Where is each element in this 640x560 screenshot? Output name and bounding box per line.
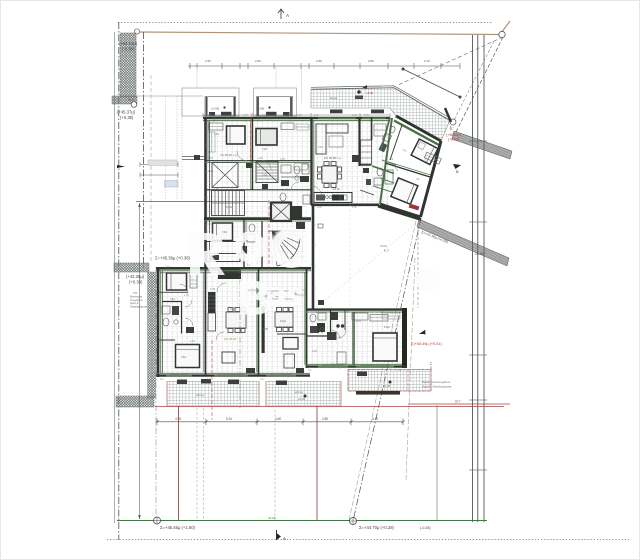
svg-text:Σ)+65.49μ (+0.51): Σ)+65.49μ (+0.51) (411, 342, 442, 346)
svg-text:ΥΔ: ΥΔ (352, 342, 356, 346)
svg-text:1.40: 1.40 (243, 114, 248, 117)
svg-text:ΣΚ 35.80 τ.μ.: ΣΚ 35.80 τ.μ. (324, 156, 342, 160)
svg-text:1.95: 1.95 (330, 363, 335, 366)
svg-text:κήπος: κήπος (295, 390, 304, 394)
svg-text:(+46.60μ): (+46.60μ) (446, 133, 461, 137)
svg-text:(+0.38): (+0.38) (129, 280, 143, 285)
svg-text:ΚΑΘ: ΚΑΘ (280, 319, 287, 323)
svg-text:3.6: 3.6 (260, 378, 264, 381)
svg-text:0.80: 0.80 (262, 114, 267, 117)
svg-text:3.40: 3.40 (208, 157, 213, 160)
svg-text:Θ.Υ.: Θ.Υ. (128, 98, 135, 102)
svg-text:4.05: 4.05 (317, 206, 322, 209)
svg-text:(+45.37μ): (+45.37μ) (117, 110, 136, 115)
svg-text:ΥΔ1: ΥΔ1 (214, 132, 220, 136)
svg-text:ΣΚ 28.30: ΣΚ 28.30 (224, 337, 237, 341)
svg-text:ΥΔ3: ΥΔ3 (222, 230, 228, 234)
svg-text:5.10: 5.10 (226, 417, 232, 421)
svg-text:+0.45: +0.45 (383, 384, 391, 388)
svg-text:(-0.38): (-0.38) (122, 47, 135, 52)
svg-text:2.40: 2.40 (210, 287, 216, 291)
svg-text:ΥΔ2: ΥΔ2 (262, 147, 268, 151)
svg-text:Θ.Γ: Θ.Γ (455, 400, 461, 404)
svg-text:κήπος: κήπος (196, 393, 205, 397)
svg-text:(+54.12μ): (+54.12μ) (119, 41, 138, 46)
svg-text:2.60: 2.60 (352, 206, 357, 209)
svg-text:ΚΑΘ: ΚΑΘ (384, 325, 391, 329)
svg-text:ΥΔ2: ΥΔ2 (181, 355, 187, 359)
svg-text:ΛΙΤ: ΛΙΤ (133, 291, 138, 295)
svg-text:(+0.52): (+0.52) (448, 138, 459, 142)
svg-text:(+0.38): (+0.38) (120, 115, 134, 120)
svg-text:Σ=+45.46μ (+1.50): Σ=+45.46μ (+1.50) (160, 525, 196, 530)
svg-text:ΥΔ1: ΥΔ1 (170, 297, 176, 301)
svg-text:ΥΔ 18.05 τ.μ.: ΥΔ 18.05 τ.μ. (220, 153, 238, 157)
svg-text:0.75: 0.75 (364, 114, 369, 117)
svg-text:1.35: 1.35 (184, 294, 189, 297)
svg-text:2.60: 2.60 (255, 59, 261, 63)
svg-text:Σ=+44.70μ (+0.28): Σ=+44.70μ (+0.28) (359, 525, 395, 530)
svg-text:2.70: 2.70 (424, 59, 430, 63)
svg-text:2.90: 2.90 (258, 157, 263, 160)
svg-text:(+2.88): (+2.88) (211, 107, 219, 111)
svg-text:2.45: 2.45 (222, 373, 227, 376)
svg-text:5.20: 5.20 (372, 417, 378, 421)
svg-text:Σ=+45.36μ (+0.38): Σ=+45.36μ (+0.38) (155, 256, 191, 261)
svg-text:ΥΔ: ΥΔ (390, 157, 394, 161)
svg-text:δώμα: δώμα (330, 96, 337, 100)
svg-text:1.20: 1.20 (208, 169, 214, 173)
svg-text:0.90: 0.90 (206, 114, 211, 117)
svg-text:2.10: 2.10 (318, 145, 324, 149)
svg-text:(-0.28): (-0.28) (420, 526, 431, 530)
svg-text:+5.60: +5.60 (366, 91, 374, 95)
svg-text:2.20: 2.20 (312, 349, 318, 353)
svg-text:Οικοδομήματα: Οικοδομήματα (130, 304, 148, 308)
svg-text:2.50: 2.50 (205, 59, 211, 63)
svg-text:1.10: 1.10 (356, 319, 362, 323)
svg-text:ΥΔ: ΥΔ (416, 177, 420, 181)
svg-text:3.2: 3.2 (308, 369, 312, 372)
svg-text:(+42.36μ): (+42.36μ) (126, 274, 145, 279)
svg-text:+0.45: +0.45 (298, 397, 306, 401)
svg-text:F-7: F-7 (384, 249, 389, 253)
svg-text:2.50: 2.50 (316, 59, 322, 63)
svg-text:1.10: 1.10 (352, 114, 357, 117)
svg-text:14.30: 14.30 (429, 362, 433, 370)
svg-text:44.05: 44.05 (268, 516, 276, 520)
svg-text:1.20: 1.20 (214, 187, 219, 190)
svg-text:2.80: 2.80 (368, 59, 374, 63)
svg-text:2.15: 2.15 (275, 373, 280, 376)
svg-text:0.90: 0.90 (262, 173, 268, 177)
svg-text:ΚΛΙΜ: ΚΛΙΜ (226, 205, 234, 209)
svg-text:Αρτά & Οικοδομήματα: Αρτά & Οικοδομήματα (422, 385, 452, 389)
svg-text:A: A (283, 536, 286, 541)
svg-text:18.20: 18.20 (333, 187, 340, 191)
svg-text:1.20: 1.20 (297, 114, 302, 117)
svg-text:A: A (286, 13, 289, 18)
svg-text:2.05: 2.05 (190, 340, 195, 343)
svg-text:Aˉ: Aˉ (450, 127, 454, 131)
svg-text:1.05: 1.05 (280, 158, 285, 161)
svg-text:0.35: 0.35 (165, 266, 170, 269)
svg-text:ΚΑΘ: ΚΑΘ (230, 307, 237, 311)
svg-text:(+2.88): (+2.88) (256, 107, 264, 111)
svg-text:4.80: 4.80 (322, 417, 328, 421)
svg-text:Ιδιοκτησία Ανωμάτων: Ιδιοκτησία Ανωμάτων (422, 380, 451, 384)
svg-text:B: B (456, 170, 459, 174)
svg-text:4.60: 4.60 (275, 417, 281, 421)
svg-text:2.40: 2.40 (314, 114, 319, 117)
svg-text:0.3: 0.3 (160, 378, 164, 381)
svg-text:1.80: 1.80 (263, 327, 269, 331)
svg-text:3.65: 3.65 (402, 148, 408, 153)
